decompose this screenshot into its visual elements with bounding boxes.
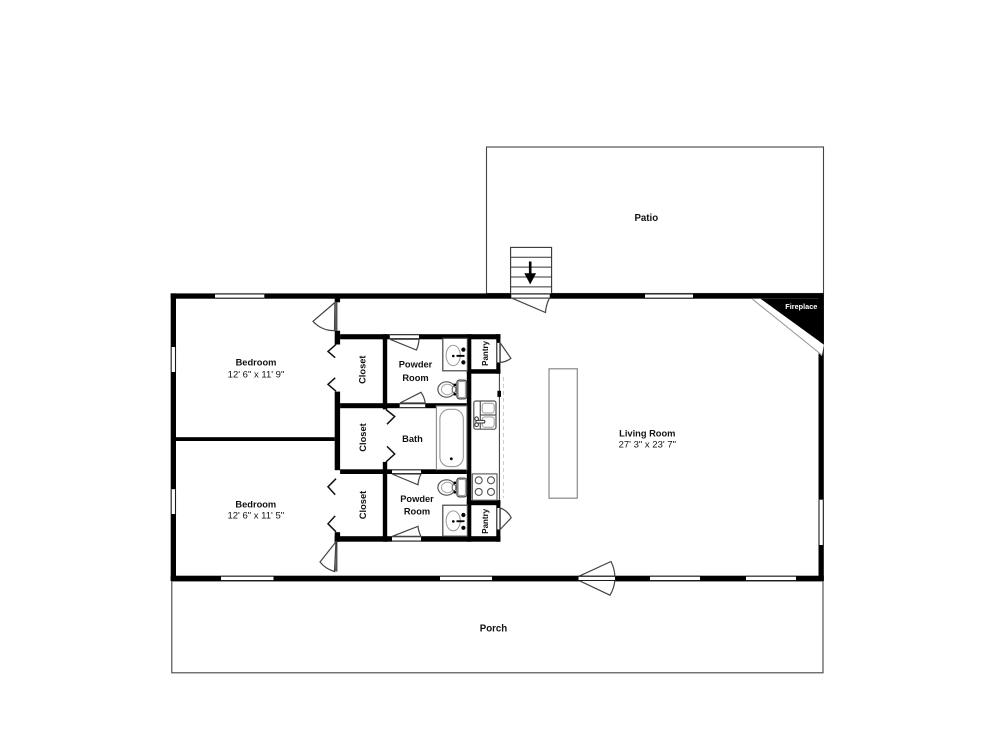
svg-text:Patio: Patio [634, 213, 658, 224]
svg-text:Porch: Porch [480, 623, 508, 634]
svg-text:Bedroom: Bedroom [235, 500, 276, 510]
svg-text:12' 6" x 11' 9": 12' 6" x 11' 9" [228, 369, 285, 380]
svg-text:Closet: Closet [358, 491, 368, 519]
svg-text:Room: Room [402, 373, 428, 383]
svg-text:Fireplace: Fireplace [785, 302, 817, 311]
svg-text:27' 3" x 23' 7": 27' 3" x 23' 7" [619, 440, 676, 451]
svg-text:Bath: Bath [402, 434, 423, 444]
svg-text:Powder: Powder [399, 359, 433, 369]
svg-text:Bedroom: Bedroom [236, 358, 277, 368]
svg-text:Closet: Closet [358, 423, 368, 451]
svg-text:Closet: Closet [358, 355, 368, 383]
svg-text:Room: Room [404, 506, 430, 516]
svg-text:Pantry: Pantry [481, 340, 490, 365]
svg-text:Pantry: Pantry [481, 508, 490, 533]
svg-text:Powder: Powder [400, 494, 434, 504]
svg-text:12' 6" x 11' 5": 12' 6" x 11' 5" [227, 510, 284, 521]
svg-text:Living Room: Living Room [619, 428, 675, 438]
